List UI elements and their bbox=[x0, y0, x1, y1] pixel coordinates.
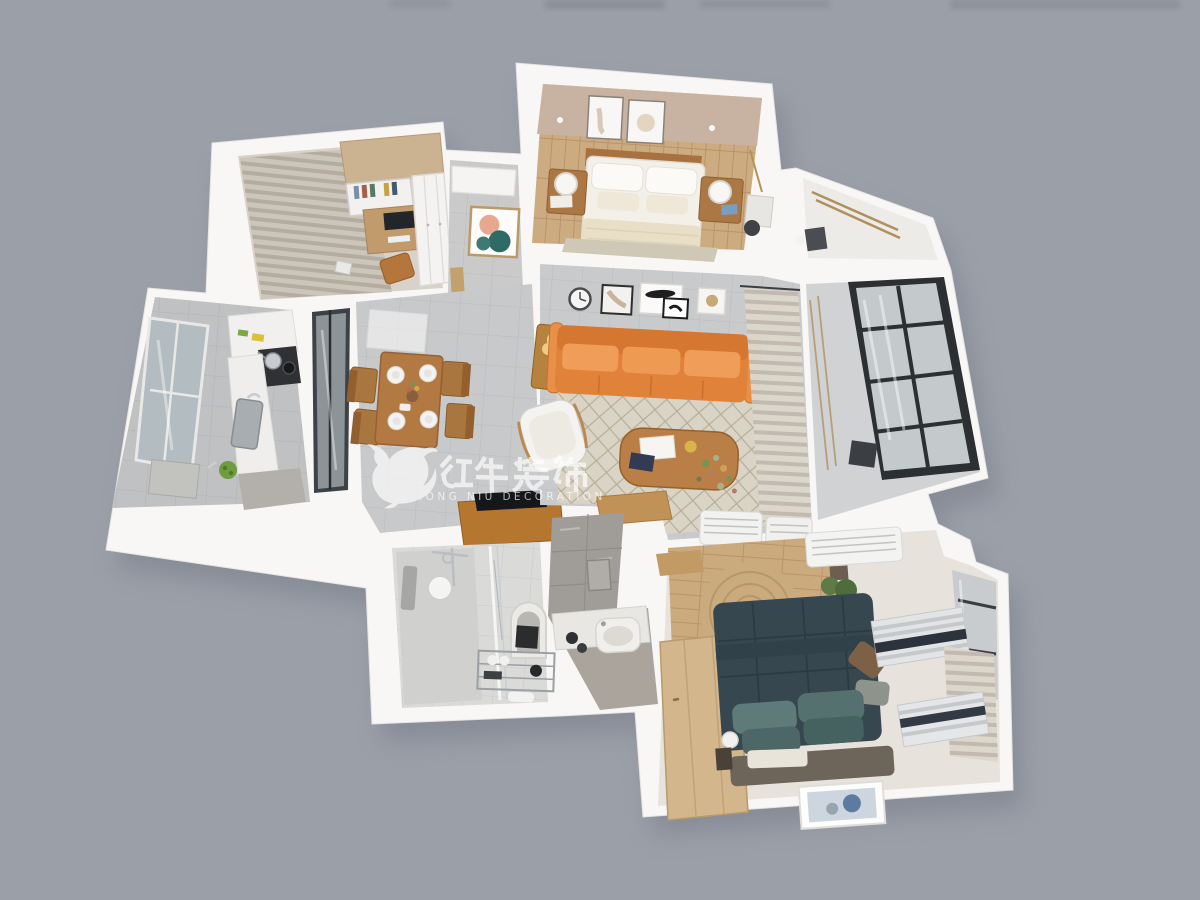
corridor-wall-art bbox=[469, 207, 519, 257]
floor-frame bbox=[799, 781, 886, 829]
coffee-table bbox=[618, 427, 740, 494]
floorplan-canvas: ® HONG NIU DECORATION bbox=[0, 0, 1200, 900]
sliding-glass-door bbox=[312, 308, 350, 493]
vegetable-plate bbox=[219, 461, 237, 479]
bedroom2-ac bbox=[805, 527, 903, 568]
ceiling-lamp bbox=[428, 576, 452, 600]
washbasin bbox=[595, 617, 641, 653]
ball-lamp bbox=[722, 732, 738, 748]
orange-sofa bbox=[546, 322, 761, 403]
wall-clock bbox=[570, 289, 591, 310]
room-bathroom bbox=[392, 542, 555, 708]
bedroom2-threshold bbox=[656, 550, 704, 576]
ceiling-glass-panel bbox=[366, 310, 427, 353]
corridor bbox=[448, 160, 523, 300]
room-second-bedroom bbox=[656, 527, 1000, 829]
room-master-bedroom bbox=[532, 84, 773, 262]
bath-appliance bbox=[515, 625, 538, 648]
balcony-chair bbox=[848, 440, 877, 467]
floorplan-3d-render: ® HONG NIU DECORATION bbox=[0, 0, 1200, 900]
registered-mark: ® bbox=[405, 457, 421, 476]
corridor-console bbox=[452, 166, 516, 196]
watermark-en-text: HONG NIU DECORATION bbox=[414, 491, 605, 503]
room-study bbox=[238, 133, 452, 300]
bath-mat bbox=[508, 692, 534, 703]
monitor bbox=[383, 211, 414, 231]
dining-table bbox=[375, 352, 443, 448]
lamp-left bbox=[555, 173, 577, 195]
lamp-right bbox=[709, 181, 731, 203]
wall-niche bbox=[587, 559, 611, 590]
floor-book bbox=[335, 261, 352, 275]
navy-bed bbox=[712, 592, 897, 788]
